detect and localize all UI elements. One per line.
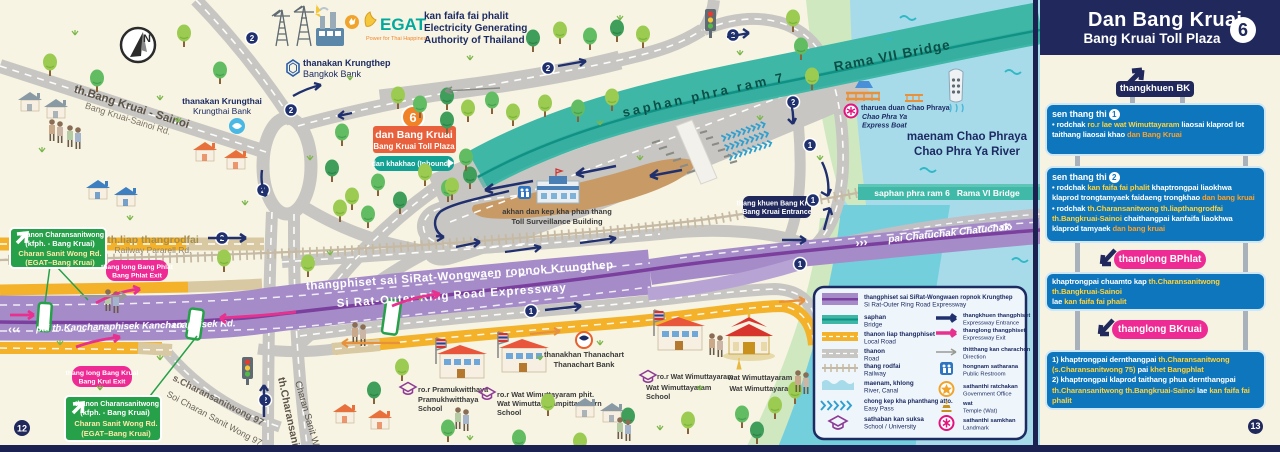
svg-text:thanon liap thangphiset: thanon liap thangphiset: [864, 331, 936, 338]
svg-text:chong kep kha phanthang atto.: chong kep kha phanthang atto.: [864, 399, 953, 405]
svg-text:wat: wat: [962, 401, 973, 407]
svg-text:thangkhuen thangphiset: thangkhuen thangphiset: [963, 313, 1030, 319]
svg-text:‹‹‹: ‹‹‹: [172, 318, 184, 332]
svg-text:Local Road: Local Road: [864, 339, 896, 346]
svg-text:thang khuen Bang Kruai: thang khuen Bang Kruai: [737, 201, 818, 208]
svg-text:Landmark: Landmark: [963, 426, 989, 432]
svg-text:(kfph. - Bang Kruai): (kfph. - Bang Kruai): [80, 408, 150, 417]
svg-text:Easy Pass: Easy Pass: [864, 406, 894, 413]
svg-text:Si Rat-Outer Ring Road Express: Si Rat-Outer Ring Road Expressway: [864, 302, 967, 309]
svg-text:wat Wimuttayaram: wat Wimuttayaram: [727, 373, 793, 382]
svg-text:1: 1: [798, 260, 803, 269]
svg-text:EGAT: EGAT: [380, 15, 427, 34]
svg-text:Railway: Railway: [864, 371, 887, 378]
svg-text:thanakan Krungthep: thanakan Krungthep: [303, 58, 391, 68]
svg-text:sathaban kan suksa: sathaban kan suksa: [864, 416, 924, 423]
svg-text:Pramukhwitthaya: Pramukhwitthaya: [418, 395, 479, 404]
svg-text:Bridge: Bridge: [864, 322, 883, 329]
svg-text:maenam Chao Phraya: maenam Chao Phraya: [907, 131, 1028, 143]
svg-text:kan faifa fai phalit: kan faifa fai phalit: [424, 11, 509, 22]
svg-text:Charan Sanit Wong Rd.: Charan Sanit Wong Rd.: [74, 419, 157, 428]
svg-text:Toll Surveillance Building: Toll Surveillance Building: [511, 217, 603, 226]
svg-text:1: 1: [529, 307, 534, 316]
svg-text:Bang Phlat Exit: Bang Phlat Exit: [112, 273, 163, 280]
svg-text:thanglong thangphiset: thanglong thangphiset: [963, 328, 1026, 334]
svg-text:(kfph. - Bang Kruai): (kfph. - Bang Kruai): [25, 239, 95, 248]
svg-text:thang rodfai: thang rodfai: [864, 363, 901, 370]
svg-text:12: 12: [17, 424, 27, 434]
svg-text:thanakan Krungthai: thanakan Krungthai: [182, 96, 262, 106]
svg-text:Bang Kruai Toll Plaza: Bang Kruai Toll Plaza: [373, 142, 455, 151]
svg-text:›››: ›››: [855, 235, 868, 250]
svg-text:Chao Phra Ya River: Chao Phra Ya River: [914, 146, 1020, 158]
svg-text:Direction: Direction: [963, 355, 986, 361]
svg-text:2: 2: [289, 106, 294, 115]
svg-text:Electricity Generating: Electricity Generating: [424, 23, 527, 34]
svg-text:Bang Kruai Entrance: Bang Kruai Entrance: [742, 209, 811, 216]
svg-text:6: 6: [409, 110, 416, 125]
svg-text:Road: Road: [864, 356, 880, 363]
svg-text:thanon: thanon: [864, 348, 885, 355]
svg-text:thanon Charansanitwong: thanon Charansanitwong: [20, 232, 104, 239]
svg-text:sathanthi samkhan: sathanthi samkhan: [963, 418, 1016, 424]
svg-text:N: N: [143, 33, 151, 45]
svg-text:Chao Phra Ya: Chao Phra Ya: [862, 114, 907, 121]
svg-text:Express Boat: Express Boat: [862, 123, 907, 130]
svg-text:River, Canal: River, Canal: [864, 388, 898, 395]
svg-text:thang long Bang Phlat: thang long Bang Phlat: [101, 264, 174, 271]
svg-text:ro.r Pramukwitthaya: ro.r Pramukwitthaya: [418, 385, 489, 394]
svg-text:School: School: [418, 404, 442, 413]
svg-text:thang long Bang Kruai: thang long Bang Kruai: [66, 370, 139, 377]
svg-text:Bangkok Bank: Bangkok Bank: [303, 69, 362, 79]
svg-text:2: 2: [546, 64, 551, 73]
svg-text:saphan phra ram 6 Rama VI Br: saphan phra ram 6 Rama VI Bridge: [874, 188, 1020, 198]
svg-text:Wat Wimuttayaram: Wat Wimuttayaram: [729, 384, 795, 393]
svg-text:thitthang kan charachon: thitthang kan charachon: [963, 347, 1031, 353]
svg-text:Authority of Thailand: Authority of Thailand: [424, 35, 525, 46]
svg-text:(EGAT–Bang Kruai): (EGAT–Bang Kruai): [81, 429, 151, 438]
svg-text:ro.r Wat Wimuttayaram: ro.r Wat Wimuttayaram: [657, 374, 733, 381]
svg-text:Temple (Wat): Temple (Wat): [963, 409, 997, 415]
svg-text:thanakhan Thanachart: thanakhan Thanachart: [544, 350, 625, 359]
svg-text:Charan Sanit Wong Rd.: Charan Sanit Wong Rd.: [18, 249, 101, 258]
svg-text:Bang Krui Exit: Bang Krui Exit: [79, 379, 127, 386]
svg-text:Expressway Entrance: Expressway Entrance: [963, 321, 1019, 327]
svg-text:Krungthai Bank: Krungthai Bank: [193, 106, 252, 116]
svg-text:Power for Thai Happiness: Power for Thai Happiness: [366, 36, 429, 42]
svg-text:2: 2: [250, 34, 255, 43]
svg-text:‹‹‹: ‹‹‹: [8, 322, 20, 336]
svg-text:thangphiset sai SiRat-Wongwaen: thangphiset sai SiRat-Wongwaen ropnok Kr…: [864, 295, 1013, 301]
svg-text:hongnam satharana: hongnam satharana: [963, 364, 1019, 370]
svg-text:School: School: [646, 392, 670, 401]
svg-text:akhan dan kep kha phan thang: akhan dan kep kha phan thang: [502, 207, 612, 216]
svg-text:dan khakhao (Inbound): dan khakhao (Inbound): [371, 159, 451, 168]
svg-text:Thanachart Bank: Thanachart Bank: [554, 360, 616, 369]
svg-text:›››: ›››: [999, 218, 1013, 234]
svg-text:1: 1: [808, 141, 813, 150]
svg-text:tharuea duan Chao Phraya: tharuea duan Chao Phraya: [861, 105, 950, 112]
svg-text:thanon Charansanitwong: thanon Charansanitwong: [75, 401, 159, 408]
svg-text:saphan: saphan: [864, 314, 886, 321]
svg-text:(EGAT–Bang Kruai): (EGAT–Bang Kruai): [25, 258, 95, 267]
svg-text:maenam, khlong: maenam, khlong: [864, 380, 914, 387]
svg-text:School: School: [497, 408, 521, 417]
svg-text:1: 1: [811, 196, 816, 205]
svg-text:sathanthi ratchakan: sathanthi ratchakan: [963, 384, 1018, 390]
svg-text:Railway Pararell Rd.: Railway Pararell Rd.: [115, 245, 192, 255]
svg-text:Expressway Exit: Expressway Exit: [963, 336, 1006, 342]
svg-text:Government Office: Government Office: [963, 392, 1012, 398]
svg-text:dan Bang Kruai: dan Bang Kruai: [375, 129, 453, 141]
svg-text:School / University: School / University: [864, 424, 917, 431]
svg-text:Public Restroom: Public Restroom: [963, 372, 1006, 378]
